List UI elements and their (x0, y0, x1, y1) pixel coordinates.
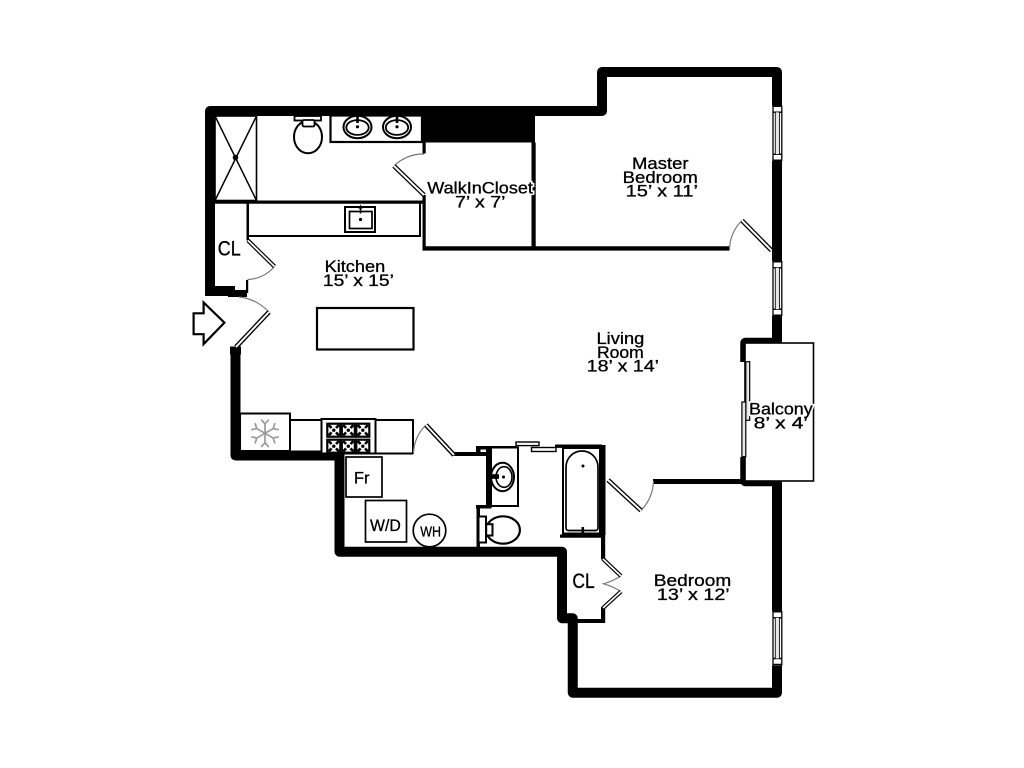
svg-text:Fr: Fr (354, 468, 370, 487)
svg-text:WH: WH (420, 523, 441, 540)
svg-text:7’ x 7’: 7’ x 7’ (455, 193, 506, 211)
svg-text:13’ x 12’: 13’ x 12’ (657, 586, 730, 604)
svg-text:15’ x 11’: 15’ x 11’ (626, 183, 698, 201)
svg-text:W/D: W/D (370, 517, 401, 535)
svg-text:CL: CL (572, 570, 594, 593)
svg-text:CL: CL (218, 238, 241, 261)
svg-text:8’ x 4’: 8’ x 4’ (754, 414, 808, 432)
svg-text:18’ x 14’: 18’ x 14’ (587, 358, 659, 376)
svg-text:15’ x 15’: 15’ x 15’ (323, 272, 394, 290)
